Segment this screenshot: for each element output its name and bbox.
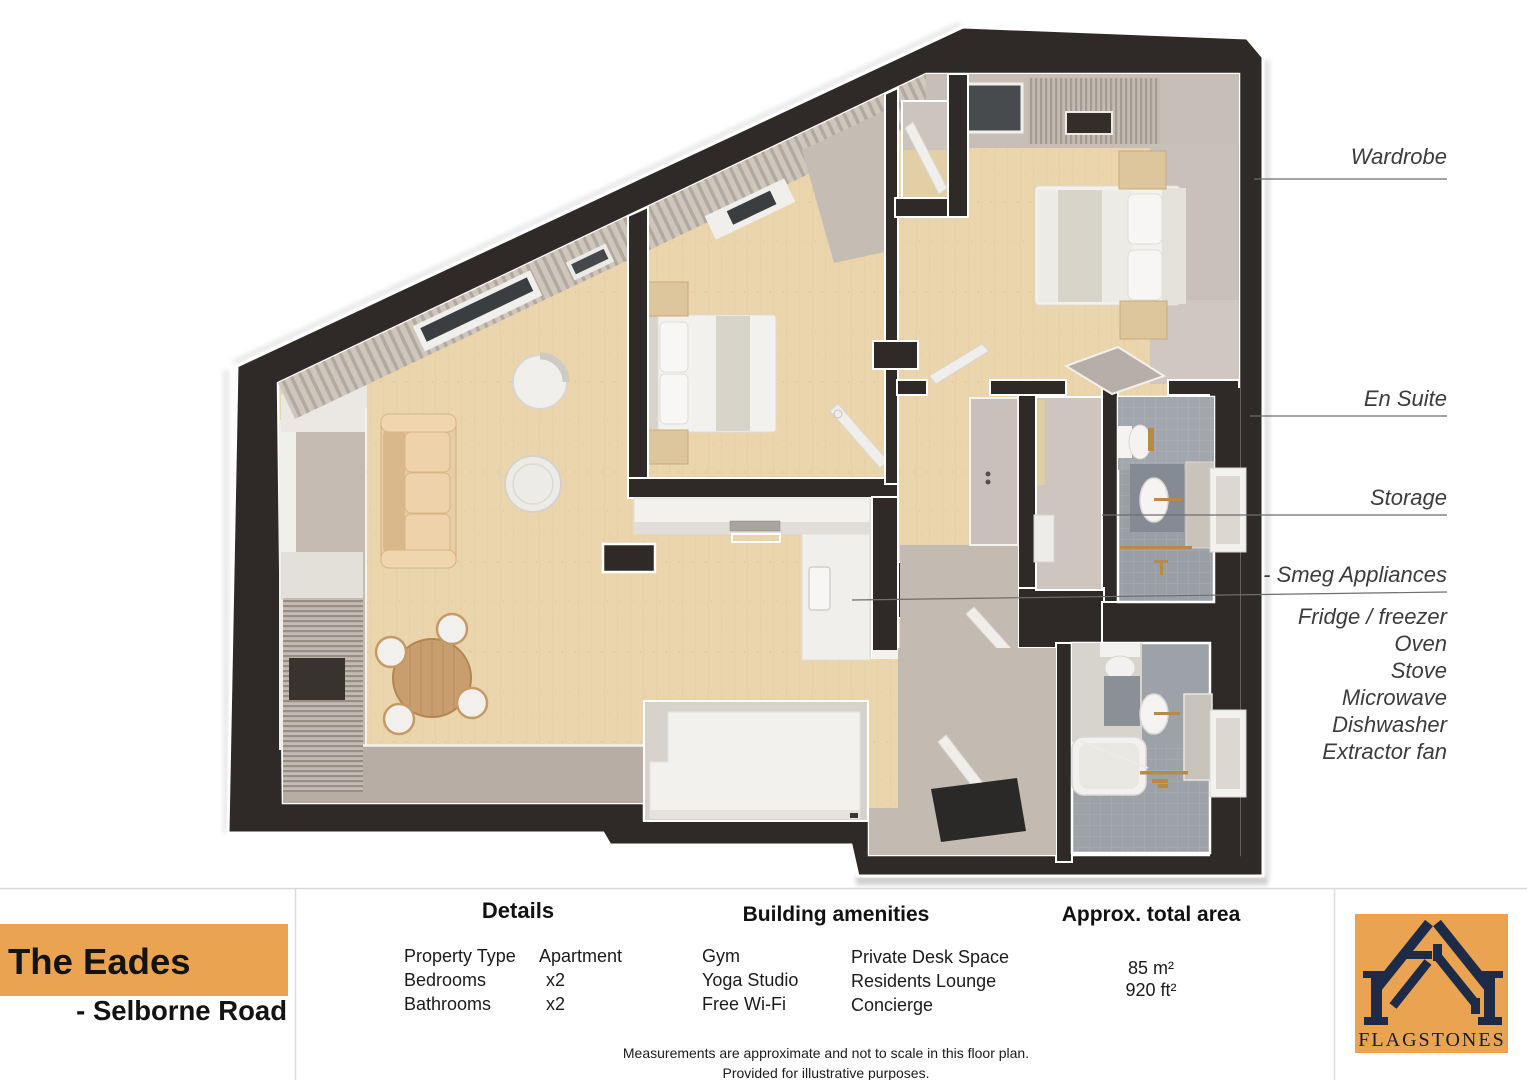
svg-text:The Eades: The Eades	[8, 941, 191, 982]
svg-text:Private Desk Space: Private Desk Space	[851, 947, 1009, 967]
svg-text:Extractor fan: Extractor fan	[1322, 739, 1447, 764]
svg-text:Microwave: Microwave	[1342, 685, 1447, 710]
svg-text:Wardrobe: Wardrobe	[1351, 144, 1447, 169]
svg-text:Provided for illustrative purp: Provided for illustrative purposes.	[723, 1065, 930, 1080]
svg-text:Oven: Oven	[1394, 631, 1447, 656]
svg-text:x2: x2	[546, 994, 565, 1014]
svg-text:Bedrooms: Bedrooms	[404, 970, 486, 990]
svg-text:920 ft²: 920 ft²	[1125, 980, 1176, 1000]
svg-text:Concierge: Concierge	[851, 995, 933, 1015]
svg-text:Measurements are approximate: Measurements are approximate and not to …	[623, 1045, 1029, 1061]
svg-text:x2: x2	[546, 970, 565, 990]
svg-text:Apartment: Apartment	[539, 946, 622, 966]
svg-text:Stove: Stove	[1391, 658, 1447, 683]
svg-text:Dishwasher: Dishwasher	[1332, 712, 1449, 737]
svg-text:Details: Details	[482, 898, 554, 923]
svg-text:Fridge / freezer: Fridge / freezer	[1298, 604, 1449, 629]
svg-text:Property Type: Property Type	[404, 946, 516, 966]
svg-text:- Selborne Road: - Selborne Road	[76, 995, 287, 1026]
svg-text:En Suite: En Suite	[1364, 386, 1447, 411]
svg-text:Building amenities: Building amenities	[743, 903, 930, 926]
svg-text:FLAGSTONES: FLAGSTONES	[1358, 1029, 1505, 1051]
svg-text:- Smeg Appliances: - Smeg Appliances	[1263, 562, 1447, 587]
svg-text:Approx. total area: Approx. total area	[1062, 903, 1241, 926]
svg-text:Yoga Studio: Yoga Studio	[702, 970, 798, 990]
svg-text:Storage: Storage	[1370, 485, 1447, 510]
svg-text:Bathrooms: Bathrooms	[404, 994, 491, 1014]
svg-text:Gym: Gym	[702, 946, 740, 966]
svg-text:Free Wi-Fi: Free Wi-Fi	[702, 994, 786, 1014]
svg-text:85 m²: 85 m²	[1128, 958, 1174, 978]
svg-text:Residents Lounge: Residents Lounge	[851, 971, 996, 991]
